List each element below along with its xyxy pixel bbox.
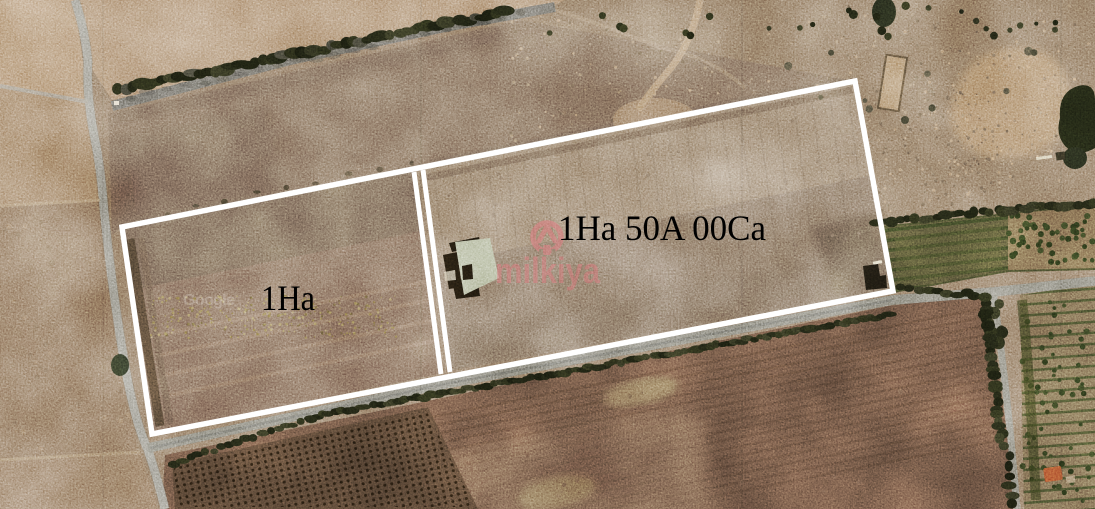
svg-text:1Ha: 1Ha	[261, 278, 315, 318]
svg-text:Google: Google	[183, 292, 235, 309]
svg-text:milkiya: milkiya	[495, 250, 601, 291]
svg-text:1Ha 50A 00Ca: 1Ha 50A 00Ca	[558, 208, 766, 248]
